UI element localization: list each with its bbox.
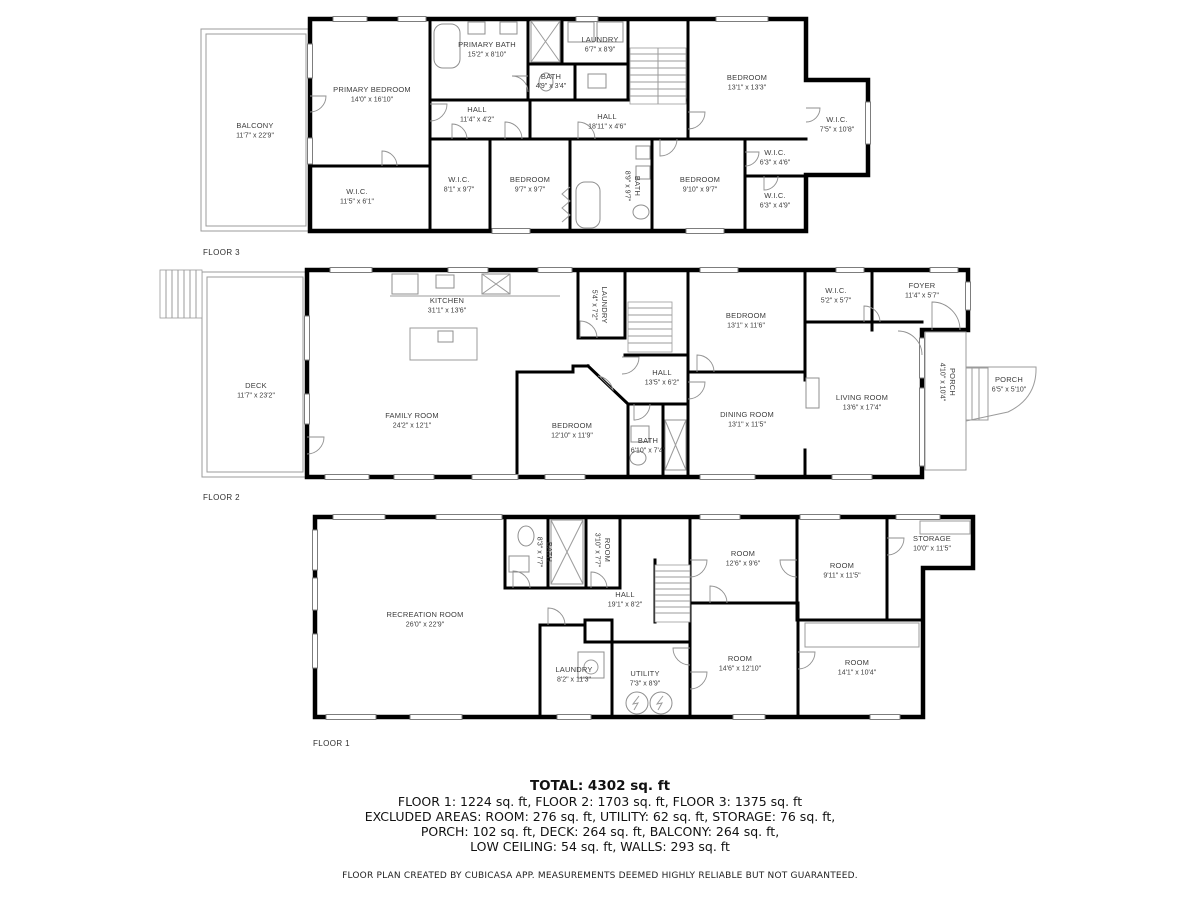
window	[305, 394, 310, 424]
window	[472, 475, 518, 480]
kitchen-counter-icon	[390, 274, 560, 296]
door-arc	[452, 124, 467, 139]
room-label: FOYER	[909, 281, 936, 290]
door-arc	[688, 382, 705, 399]
door-arc	[382, 151, 397, 166]
room-label: UTILITY	[630, 669, 659, 678]
toilet-icon	[518, 526, 534, 546]
room-dims: 11'7" x 22'9"	[236, 133, 274, 140]
svg-text:BATH: BATH	[633, 176, 642, 196]
window	[333, 17, 367, 22]
window	[538, 268, 572, 273]
room-label: DECK	[245, 381, 267, 390]
svg-text:8'3" x 7'7": 8'3" x 7'7"	[536, 537, 543, 568]
room-dims: 13'1" x 13'3"	[728, 85, 767, 92]
room-dims: 14'1" x 10'4"	[838, 670, 877, 677]
room-label: W.I.C.	[764, 191, 786, 200]
room-label: PRIMARY BEDROOM	[333, 85, 411, 94]
wall-niche-icon	[806, 378, 819, 408]
door-arc	[764, 176, 778, 190]
window	[920, 338, 925, 378]
room-label: ROOM	[830, 561, 854, 570]
room-label: PORCH	[995, 375, 1023, 384]
door-arc	[806, 108, 820, 122]
svg-text:LAUNDRY: LAUNDRY	[600, 286, 609, 323]
room-label: W.I.C.	[448, 175, 470, 184]
window	[308, 44, 313, 78]
room-dims: 14'0" x 16'10"	[351, 97, 394, 104]
room-label: DINING ROOM	[720, 410, 774, 419]
floor-2-caption: FLOOR 2	[203, 493, 240, 502]
room-dims: 13'1" x 11'5"	[728, 422, 766, 429]
door-arc	[780, 560, 797, 577]
svg-text:8'9" x 9'7": 8'9" x 9'7"	[624, 171, 631, 202]
sink-icon	[509, 556, 529, 572]
room-label: LAUNDRY	[581, 35, 618, 44]
door-arc	[634, 404, 650, 420]
room-dims: 10'0" x 11'5"	[913, 546, 951, 553]
window	[800, 515, 840, 520]
room-dims: 31'1" x 13'6"	[428, 308, 467, 315]
door-arc	[673, 648, 690, 665]
room-dims: 12'10" x 11'9"	[551, 433, 593, 440]
window	[333, 515, 385, 520]
room-label: BEDROOM	[680, 175, 720, 184]
window	[330, 268, 372, 273]
room-dims: 9'11" x 11'5"	[823, 573, 861, 580]
room-dims: 11'4" x 4'2"	[460, 117, 494, 124]
window	[700, 268, 738, 273]
room-dims: 4'9" x 3'4"	[536, 83, 567, 90]
stairs-icon	[655, 565, 690, 622]
room-label: W.I.C.	[346, 187, 368, 196]
room-label: STORAGE	[913, 534, 951, 543]
room-label: BATH	[638, 436, 658, 445]
sink-icon	[468, 22, 485, 34]
door-arc	[505, 122, 522, 139]
floor-plan-page: BALCONY 11'7" x 22'9" PRIMARY BEDROOM 14…	[0, 0, 1200, 900]
room-label-vertical: LAUNDRY 5'4" x 7'2"	[591, 286, 610, 323]
door-arc	[622, 357, 639, 374]
balcony-inner-outline	[206, 34, 306, 226]
balcony-outline	[201, 29, 310, 231]
room-label-vertical: PORCH 4'10" x 10'4"	[939, 363, 958, 402]
room-dims: 6'3" x 4'6"	[760, 160, 791, 167]
room-label: PRIMARY BATH	[458, 40, 516, 49]
room-dims: 11'7" x 23'2"	[237, 393, 275, 400]
room-label: W.I.C.	[826, 115, 848, 124]
door-arc	[887, 538, 904, 555]
floor-2-plan: DECK 11'7" x 23'2" KITCHEN 31'1" x 13'6"…	[160, 268, 1036, 503]
room-dims: 8'1" x 9'7"	[444, 187, 475, 194]
window	[305, 316, 310, 360]
sink-icon	[500, 22, 517, 34]
room-dims: 6'5" x 5'10"	[992, 387, 1027, 394]
svg-text:ROOM: ROOM	[603, 538, 612, 562]
door-arc	[430, 104, 447, 121]
svg-text:3'10" x 7'7": 3'10" x 7'7"	[594, 533, 601, 568]
room-dims: 11'5" x 6'1"	[340, 199, 374, 206]
room-label: LIVING ROOM	[836, 393, 888, 402]
window	[545, 475, 585, 480]
window	[398, 17, 426, 22]
shower-icon	[551, 520, 583, 584]
room-dims: 7'5" x 10'8"	[820, 127, 855, 134]
room-dims: 18'11" x 4'6"	[588, 124, 626, 131]
wall	[690, 517, 923, 620]
room-label: HALL	[615, 590, 635, 599]
room-label-vertical: ROOM 3'10" x 7'7"	[594, 533, 613, 568]
door-arc	[580, 321, 597, 338]
low-ceiling-outline	[805, 623, 919, 647]
window	[896, 515, 940, 520]
door-arc	[690, 560, 707, 577]
window	[326, 715, 376, 720]
room-dims: 26'0" x 22'9"	[406, 622, 445, 629]
door-arc	[688, 112, 705, 129]
window	[966, 282, 971, 310]
window	[436, 515, 502, 520]
room-dims: 6'3" x 4'9"	[760, 203, 791, 210]
door-arc	[798, 652, 815, 669]
room-label: FAMILY ROOM	[385, 411, 439, 420]
window	[716, 17, 768, 22]
deck-inner-outline	[207, 277, 303, 472]
room-label: LAUNDRY	[555, 665, 592, 674]
room-label: ROOM	[731, 549, 755, 558]
room-dims: 5'2" x 5'7"	[821, 298, 852, 305]
window	[866, 102, 871, 144]
room-label: BEDROOM	[727, 73, 767, 82]
door-arc	[690, 672, 707, 689]
door-arc	[310, 96, 326, 112]
room-label: ROOM	[845, 658, 869, 667]
room-dims: 12'6" x 9'6"	[726, 561, 761, 568]
room-dims: 14'6" x 12'10"	[719, 666, 762, 673]
room-dims: 7'3" x 8'9"	[630, 681, 661, 688]
window	[870, 715, 900, 720]
room-label: BALCONY	[236, 121, 273, 130]
excluded-areas-2: PORCH: 102 sq. ft, DECK: 264 sq. ft, BAL…	[0, 824, 1200, 839]
wall	[430, 139, 806, 231]
window	[832, 475, 872, 480]
window	[836, 268, 864, 273]
floor-areas: FLOOR 1: 1224 sq. ft, FLOOR 2: 1703 sq. …	[0, 794, 1200, 809]
kitchen-island-icon	[410, 328, 477, 360]
room-dims: 15'2" x 8'10"	[468, 52, 507, 59]
disclaimer-text: FLOOR PLAN CREATED BY CUBICASA APP. MEAS…	[0, 871, 1200, 881]
shower-icon	[531, 21, 560, 62]
room-label: KITCHEN	[430, 296, 464, 305]
window	[576, 17, 598, 22]
room-label: HALL	[467, 105, 487, 114]
floor-plan-drawing: BALCONY 11'7" x 22'9" PRIMARY BEDROOM 14…	[0, 0, 1200, 900]
window	[492, 229, 530, 234]
room-dims: 13'1" x 11'6"	[727, 323, 765, 330]
total-area: TOTAL: 4302 sq. ft	[0, 779, 1200, 794]
room-label: BEDROOM	[552, 421, 592, 430]
svg-text:BATH: BATH	[545, 542, 554, 562]
sink-icon	[588, 74, 606, 88]
window	[733, 715, 765, 720]
storage-shelf-icon	[920, 521, 970, 534]
shower-icon	[665, 420, 686, 470]
door-arc	[710, 586, 727, 603]
room-label: BEDROOM	[510, 175, 550, 184]
door-arc	[512, 76, 528, 92]
window	[394, 475, 434, 480]
window	[920, 388, 925, 466]
room-dims: 6'10" x 7'4"	[631, 448, 666, 455]
floor-3-plan: BALCONY 11'7" x 22'9" PRIMARY BEDROOM 14…	[201, 17, 871, 258]
room-label-vertical: BATH 8'9" x 9'7"	[624, 171, 643, 202]
room-label: HALL	[652, 368, 672, 377]
toilet-icon	[633, 205, 649, 219]
room-dims: 9'7" x 9'7"	[515, 187, 546, 194]
window	[557, 715, 591, 720]
water-heater-icon	[626, 692, 672, 714]
area-summary: TOTAL: 4302 sq. ft FLOOR 1: 1224 sq. ft,…	[0, 779, 1200, 854]
stairs-icon	[628, 302, 672, 352]
room-label: RECREATION ROOM	[386, 610, 463, 619]
room-dims: 24'2" x 12'1"	[393, 423, 432, 430]
room-dims: 6'7" x 8'9"	[585, 47, 616, 54]
room-dims: 13'6" x 17'4"	[843, 405, 882, 412]
room-dims: 13'5" x 6'2"	[645, 380, 680, 387]
sink-icon	[636, 146, 650, 159]
stairs-icon	[630, 48, 686, 104]
window	[308, 138, 313, 164]
door-arc	[513, 571, 530, 588]
door-arc	[307, 437, 324, 454]
window	[410, 715, 462, 720]
room-dims: 8'2" x 11'3"	[557, 677, 591, 684]
room-label: HALL	[597, 112, 617, 121]
bathtub-icon	[576, 182, 600, 228]
room-label: ROOM	[728, 654, 752, 663]
door-arc	[898, 331, 922, 355]
room-dims: 19'1" x 8'2"	[608, 602, 643, 609]
excluded-areas-3: LOW CEILING: 54 sq. ft, WALLS: 293 sq. f…	[0, 839, 1200, 854]
door-arc	[548, 608, 565, 625]
door-arc	[745, 152, 759, 166]
svg-text:PORCH: PORCH	[948, 368, 957, 396]
window	[313, 634, 318, 668]
floor-1-caption: FLOOR 1	[313, 739, 350, 748]
wall	[307, 270, 968, 477]
svg-text:4'10" x 10'4": 4'10" x 10'4"	[939, 363, 946, 402]
floor-1-plan: RECREATION ROOM 26'0" x 22'9" BATH 8'3" …	[313, 515, 974, 749]
window	[700, 515, 740, 520]
room-label: W.I.C.	[825, 286, 847, 295]
door-arc	[660, 139, 677, 156]
room-label: BATH	[541, 72, 561, 81]
deck-outline	[202, 272, 307, 477]
room-dims: 9'10" x 9'7"	[683, 187, 718, 194]
bathtub-icon	[434, 24, 460, 68]
door-arc	[591, 572, 607, 588]
room-label: BEDROOM	[726, 311, 766, 320]
door-arc	[932, 302, 960, 330]
window	[313, 578, 318, 610]
exterior-stairs-icon	[160, 270, 202, 318]
door-arc	[697, 355, 714, 372]
excluded-areas-1: EXCLUDED AREAS: ROOM: 276 sq. ft, UTILIT…	[0, 809, 1200, 824]
window	[313, 530, 318, 570]
room-dims: 11'4" x 5'7"	[905, 293, 939, 300]
window	[686, 229, 724, 234]
room-label: W.I.C.	[764, 148, 786, 157]
window	[448, 268, 488, 273]
window	[700, 475, 755, 480]
svg-text:5'4" x 7'2": 5'4" x 7'2"	[591, 290, 598, 321]
window	[325, 475, 369, 480]
floor-3-caption: FLOOR 3	[203, 248, 240, 257]
window	[930, 268, 958, 273]
